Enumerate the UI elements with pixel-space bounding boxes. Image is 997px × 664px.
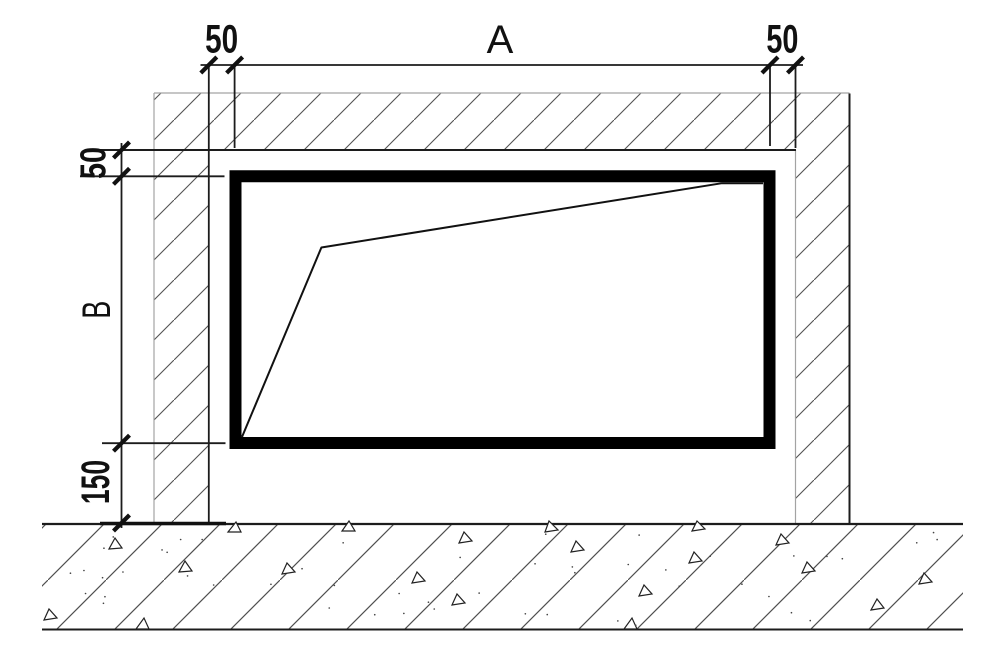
svg-text:A: A <box>487 18 514 62</box>
svg-text:50: 50 <box>205 17 238 61</box>
svg-text:B: B <box>75 301 119 319</box>
svg-text:50: 50 <box>766 17 798 61</box>
svg-text:150: 150 <box>74 460 118 504</box>
svg-text:50: 50 <box>73 147 114 179</box>
